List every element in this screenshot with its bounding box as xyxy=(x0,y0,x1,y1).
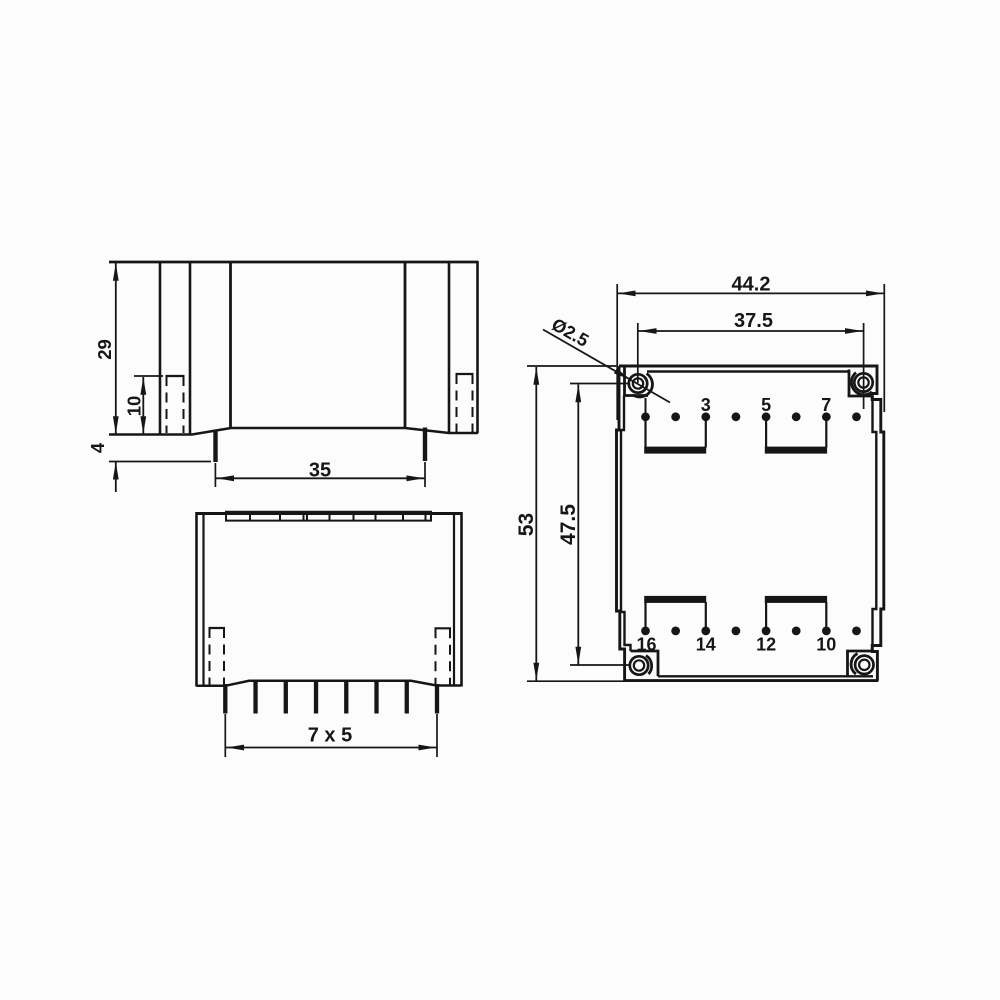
svg-text:3: 3 xyxy=(701,395,711,415)
svg-text:37.5: 37.5 xyxy=(734,310,773,332)
svg-text:44.2: 44.2 xyxy=(732,274,771,296)
svg-text:12: 12 xyxy=(756,635,776,655)
svg-text:47.5: 47.5 xyxy=(557,504,580,545)
svg-text:4: 4 xyxy=(87,442,108,453)
svg-text:7 x 5: 7 x 5 xyxy=(308,725,352,747)
svg-text:53: 53 xyxy=(515,513,538,536)
svg-text:29: 29 xyxy=(94,339,115,360)
svg-text:35: 35 xyxy=(309,460,331,482)
svg-text:14: 14 xyxy=(696,635,716,655)
svg-text:16: 16 xyxy=(636,635,656,655)
svg-text:7: 7 xyxy=(821,395,831,415)
svg-text:10: 10 xyxy=(816,635,836,655)
svg-text:10: 10 xyxy=(124,396,145,417)
svg-text:5: 5 xyxy=(761,395,771,415)
